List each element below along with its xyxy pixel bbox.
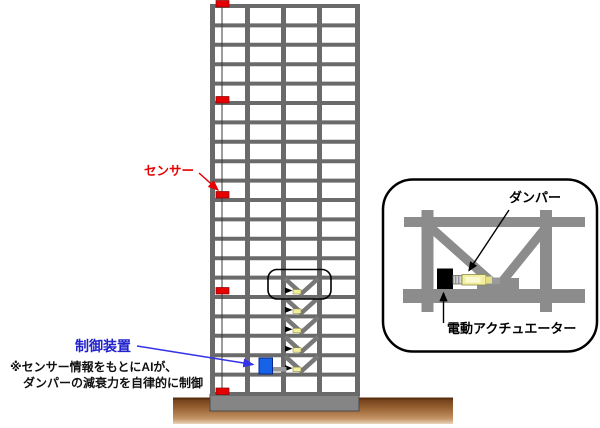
- damper-unit: [293, 348, 301, 353]
- damper-unit: [293, 367, 301, 372]
- sensor-marker: [216, 1, 229, 8]
- sensor-marker: [216, 192, 229, 199]
- inset-damper-inner: [466, 277, 481, 283]
- controller-device: [259, 358, 273, 374]
- sensor-marker: [216, 97, 229, 104]
- inset-actuator: [437, 269, 453, 290]
- foundation-slab: [210, 395, 359, 412]
- diagram-canvas: センサー 制御装置 ※センサー情報をもとにAIが、 ダンパーの減衰力を自律的に制…: [0, 0, 600, 428]
- sensor-label: センサー: [144, 164, 194, 180]
- damper-unit: [293, 309, 301, 314]
- inset-coupler: [453, 276, 462, 285]
- sensor-marker: [216, 288, 229, 295]
- inset-damper-label: ダンパー: [509, 190, 561, 206]
- inset-damper-cap: [486, 277, 492, 284]
- damper-unit: [293, 328, 301, 333]
- sensor-marker: [216, 388, 229, 395]
- controller-label: 制御装置: [75, 338, 131, 356]
- note-line1: ※センサー情報をもとにAIが、: [10, 360, 177, 375]
- inset-bottom-beam: [403, 289, 585, 303]
- controller-link-rod: [273, 367, 287, 372]
- damper-unit: [293, 290, 301, 295]
- note-line2: ダンパーの減衰力を自律的に制御: [23, 376, 203, 391]
- inset-actuator-label: 電動アクチュエーター: [447, 321, 576, 337]
